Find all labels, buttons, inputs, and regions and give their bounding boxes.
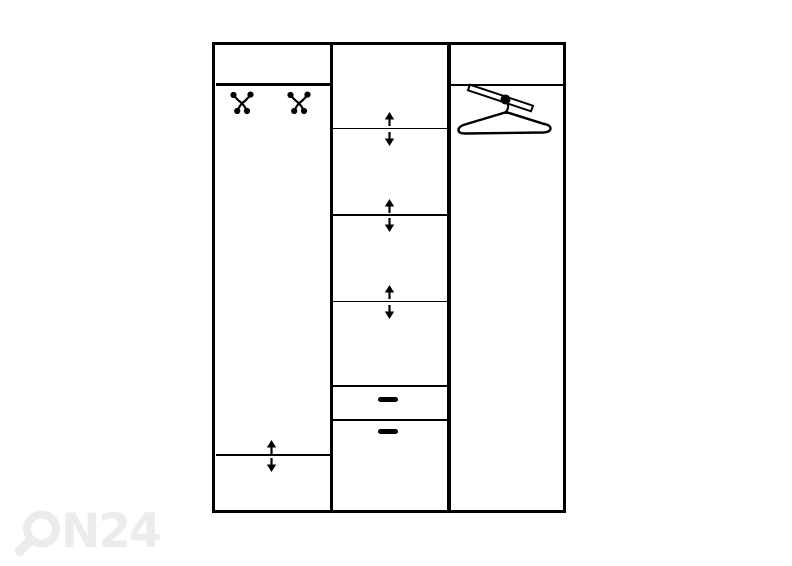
adjust-up-icon-1: [384, 112, 395, 126]
hanger-rail-icon: [455, 83, 555, 139]
coat-hook-icon-2: [286, 90, 312, 116]
adjust-down-icon-3: [384, 305, 395, 319]
adjust-down-icon-4: [266, 458, 277, 472]
coat-hook-icon-1: [229, 90, 255, 116]
left-adjustable-shelf-line: [216, 454, 330, 456]
middle-shelf-line-3: [333, 301, 447, 303]
drawer-divider-line: [333, 419, 447, 422]
hanger-hook-wrap: [501, 95, 511, 105]
watermark-text: N24: [61, 504, 160, 559]
rail-rod: [468, 85, 533, 112]
drawer-handle-icon-1: [378, 397, 398, 402]
adjust-up-icon-2: [384, 199, 395, 213]
column-divider-left: [330, 42, 334, 513]
middle-shelf-line-1: [333, 128, 447, 130]
adjust-up-icon-3: [384, 285, 395, 299]
product-schematic: N24: [0, 0, 792, 566]
left-top-shelf-line: [216, 83, 330, 86]
adjust-down-icon-1: [384, 132, 395, 146]
magnifier-o-icon: [20, 515, 57, 552]
hanger-body: [459, 113, 551, 134]
adjust-down-icon-2: [384, 218, 395, 232]
middle-shelf-line-2: [333, 214, 447, 216]
watermark-logo: N24: [12, 505, 157, 557]
drawer-handle-icon-2: [378, 429, 398, 434]
column-divider-right: [447, 42, 451, 513]
adjust-up-icon-4: [266, 440, 277, 454]
drawers-top-line: [333, 385, 447, 388]
